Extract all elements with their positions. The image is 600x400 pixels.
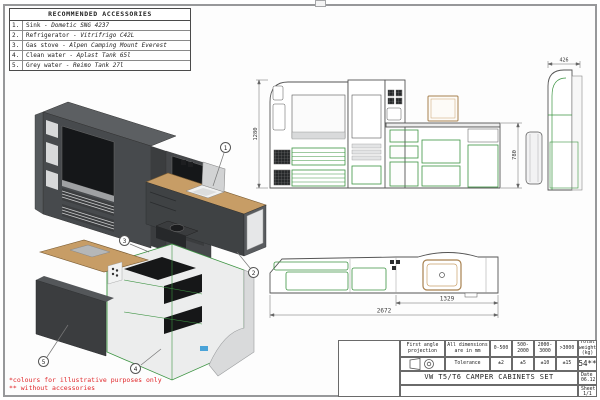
tolerance-value-cell: ±15	[556, 357, 578, 371]
note-accessories: ** without accessories	[9, 384, 162, 392]
row-description: Refrigerator - Vitrifrigo C42L	[23, 31, 134, 40]
date-value: 06.12.2023	[581, 378, 594, 383]
projection-symbol-cell	[400, 357, 445, 371]
side-pillar	[526, 132, 542, 184]
dimension-total-length	[270, 295, 498, 318]
side-elevation-view: 426	[518, 56, 598, 196]
range-cell: 0-500	[490, 340, 512, 357]
title-block-empty-cell	[338, 340, 400, 397]
balloon-number: 2	[252, 270, 256, 277]
table-row: 1. Sink - Dometic SNG 4237	[10, 21, 190, 31]
item-product: Aplast Tank 65l	[77, 52, 131, 59]
dim-label-counter-length: 1329	[440, 296, 455, 303]
date-cell: Date 06.12.2023	[578, 371, 597, 385]
dim-label-side-depth: 426	[559, 58, 568, 64]
drawing-title-cell: VW T5/T6 CAMPER CABINETS SET	[400, 371, 578, 385]
row-number: 4.	[10, 51, 23, 60]
balloon-number: 4	[134, 366, 138, 373]
balloon-number: 5	[42, 359, 46, 366]
water-tank	[36, 280, 106, 356]
row-number: 2.	[10, 31, 23, 40]
row-description: Grey water - Reimo Tank 27l	[23, 61, 124, 70]
speaker-grille	[274, 170, 290, 185]
side-outline	[548, 70, 572, 190]
tolerance-value-cell: ±2	[490, 357, 512, 371]
item-label: Grey water -	[26, 62, 73, 69]
dim-label-front-height: 1280	[253, 127, 259, 140]
item-product: Alpen Camping Mount Everest	[69, 42, 167, 49]
sheet-top-notch	[315, 0, 326, 7]
item-label: Clean water -	[26, 52, 77, 59]
first-angle-projection-icon	[408, 358, 438, 370]
dim-label-total-length: 2672	[377, 308, 392, 315]
title-block-bottom-empty	[400, 385, 578, 397]
dims-in-mm-cell: All dimensions are in mm	[445, 340, 490, 357]
balloon-grey-water: 5	[38, 356, 49, 367]
sticker	[200, 346, 208, 351]
plan-outline	[270, 253, 498, 294]
tolerance-label-cell: Tolerance	[445, 357, 490, 371]
accessories-table-title: RECOMMENDED ACCESSORIES	[10, 9, 190, 21]
sink-lid-elevation	[428, 96, 458, 121]
stove-burner	[170, 224, 184, 231]
sink-drain	[440, 273, 445, 278]
item-label: Refrigerator -	[26, 32, 80, 39]
row-description: Gas stove - Alpen Camping Mount Everest	[23, 41, 167, 50]
recommended-accessories-table: RECOMMENDED ACCESSORIES 1. Sink - Dometi…	[9, 8, 191, 71]
plan-view-svg: 1329 2672	[260, 246, 538, 324]
row-number: 5.	[10, 61, 23, 70]
sheet-value: 1/1	[581, 392, 594, 397]
note-colours: *colours for illustrative purposes only	[9, 376, 162, 384]
tolerance-value-cell: ±5	[512, 357, 534, 371]
item-label: Gas stove -	[26, 42, 69, 49]
row-description: Clean water - Aplast Tank 65l	[23, 51, 131, 60]
weight-value-cell: 54**	[578, 357, 597, 371]
range-cell: >3000	[556, 340, 578, 357]
balloon-clean-water: 4	[130, 363, 141, 374]
range-cell: 500-2000	[512, 340, 534, 357]
range-cell: 2000-3000	[534, 340, 556, 357]
plan-view: 1329 2672	[260, 246, 538, 324]
roller-door	[292, 95, 345, 138]
balloon-refrigerator: 2	[248, 267, 259, 278]
tolerance-value-cell: ±10	[534, 357, 556, 371]
row-number: 3.	[10, 41, 23, 50]
projection-label-cell: First angle projection	[400, 340, 445, 357]
sheet-cell: Sheet 1/1	[578, 385, 597, 397]
balloon-number: 1	[224, 145, 228, 152]
balloon-sink: 1	[220, 142, 231, 153]
item-product: Dometic SNG 4237	[51, 22, 109, 29]
item-product: Vitrifrigo C42L	[80, 32, 134, 39]
balloon-gas-stove: 3	[119, 235, 130, 246]
row-number: 1.	[10, 21, 23, 30]
item-label: Sink -	[26, 22, 51, 29]
table-row: 3. Gas stove - Alpen Camping Mount Evere…	[10, 41, 190, 51]
title-block: First angle projection All dimensions ar…	[338, 340, 597, 397]
item-product: Reimo Tank 27l	[73, 62, 124, 69]
front-elevation-view: 1280 780	[248, 56, 540, 198]
table-row: 5. Grey water - Reimo Tank 27l	[10, 61, 190, 70]
table-row: 2. Refrigerator - Vitrifrigo C42L	[10, 31, 190, 41]
weight-label-cell: Total weight (kg)	[578, 340, 597, 357]
balloon-number: 3	[123, 238, 127, 245]
footnotes: *colours for illustrative purposes only*…	[9, 376, 162, 392]
row-description: Sink - Dometic SNG 4237	[23, 21, 109, 30]
side-elevation-svg: 426	[518, 56, 598, 196]
front-elevation-svg: 1280 780	[248, 56, 540, 198]
table-row: 4. Clean water - Aplast Tank 65l	[10, 51, 190, 61]
speaker-grille	[274, 150, 290, 164]
